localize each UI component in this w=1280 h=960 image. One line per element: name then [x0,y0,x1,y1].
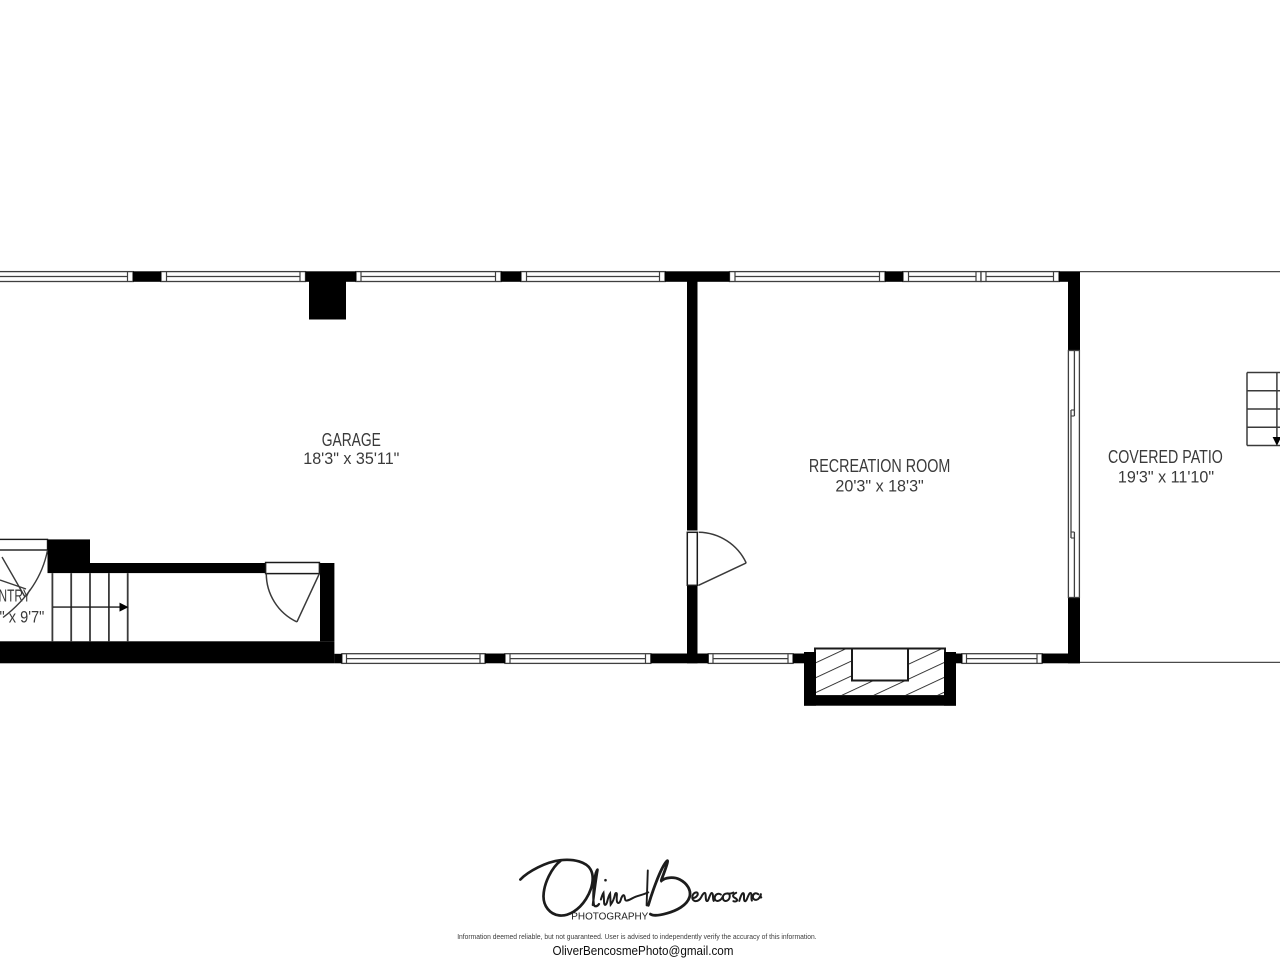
svg-text:RECREATION ROOM: RECREATION ROOM [809,456,950,476]
svg-text:20'3" x 18'3": 20'3" x 18'3" [835,477,924,495]
svg-text:" x 9'7": " x 9'7" [0,608,44,626]
svg-text:NTRY: NTRY [0,586,31,606]
svg-text:COVERED PATIO: COVERED PATIO [1108,448,1223,468]
svg-text:GARAGE: GARAGE [322,430,381,450]
svg-text:18'3" x 35'11": 18'3" x 35'11" [303,450,399,468]
svg-text:Information deemed reliable, b: Information deemed reliable, but not gua… [457,932,816,941]
svg-text:OliverBencosmePhoto@gmail.com: OliverBencosmePhoto@gmail.com [553,943,734,958]
svg-text:PHOTOGRAPHY: PHOTOGRAPHY [571,912,648,923]
svg-text:19'3" x 11'10": 19'3" x 11'10" [1118,468,1214,486]
